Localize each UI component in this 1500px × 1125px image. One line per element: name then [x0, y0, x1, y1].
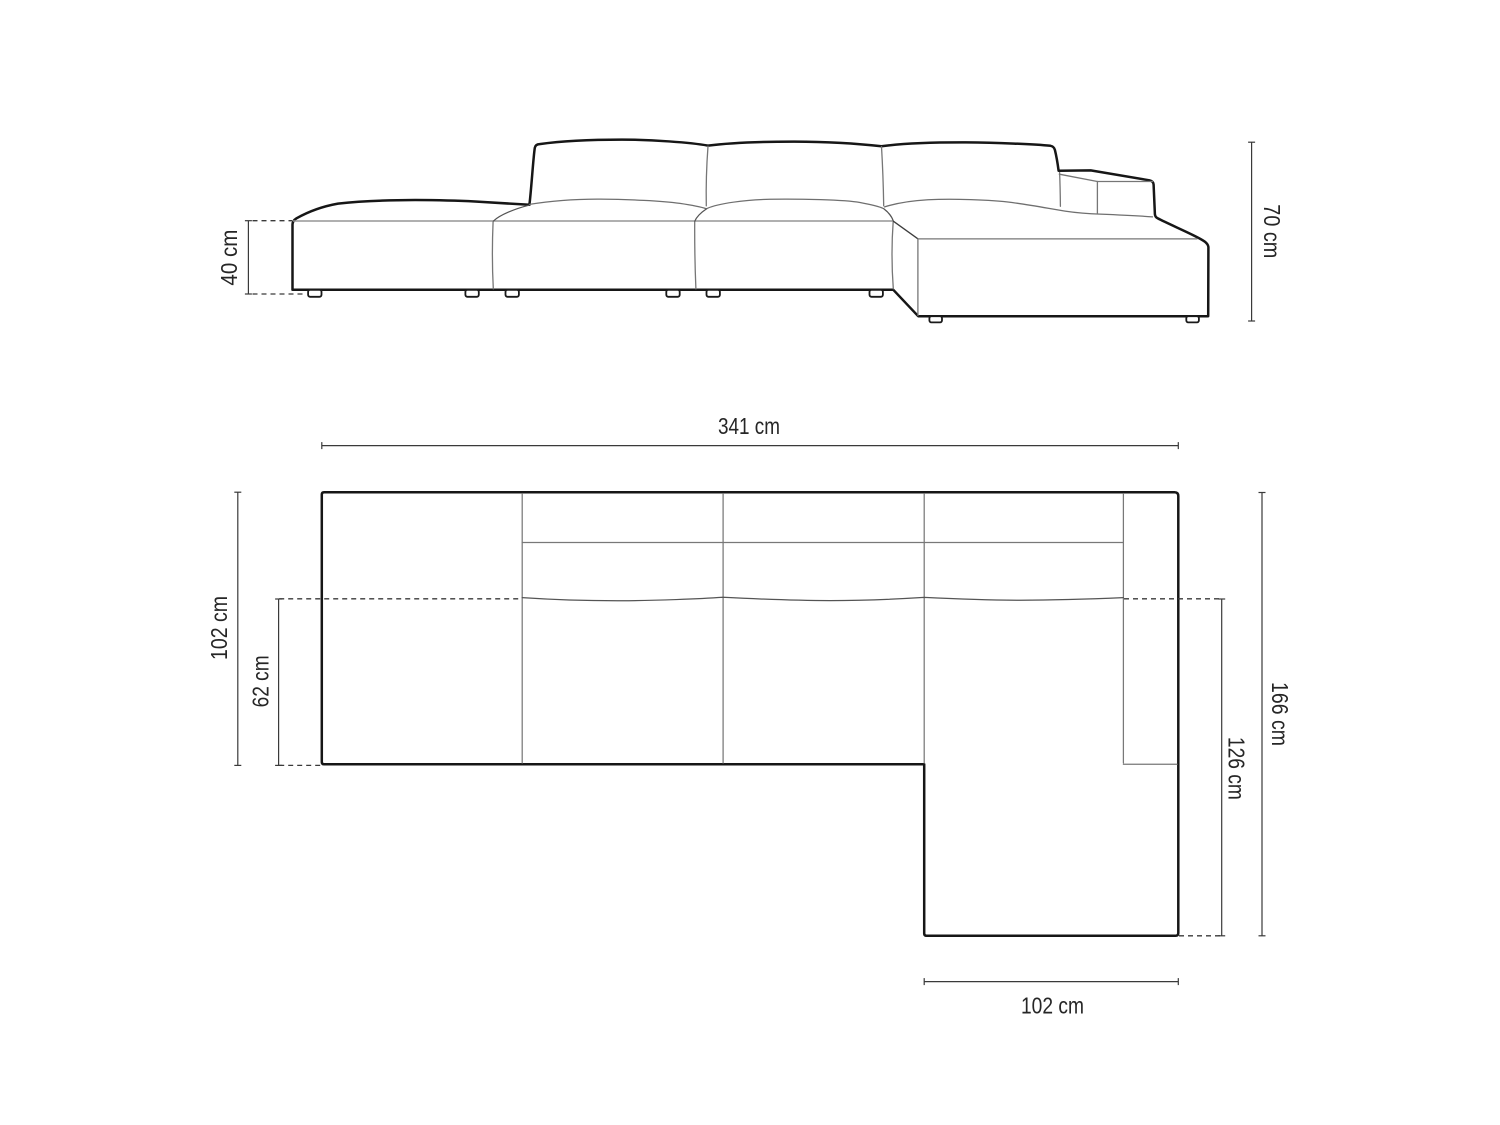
svg-text:62 cm: 62 cm: [247, 655, 273, 707]
svg-text:341 cm: 341 cm: [718, 413, 780, 439]
svg-text:102 cm: 102 cm: [206, 596, 232, 660]
svg-text:40 cm: 40 cm: [216, 230, 242, 286]
svg-text:126 cm: 126 cm: [1224, 737, 1250, 800]
svg-text:102 cm: 102 cm: [1021, 993, 1084, 1019]
svg-text:166 cm: 166 cm: [1267, 682, 1293, 746]
svg-text:70 cm: 70 cm: [1259, 204, 1285, 258]
